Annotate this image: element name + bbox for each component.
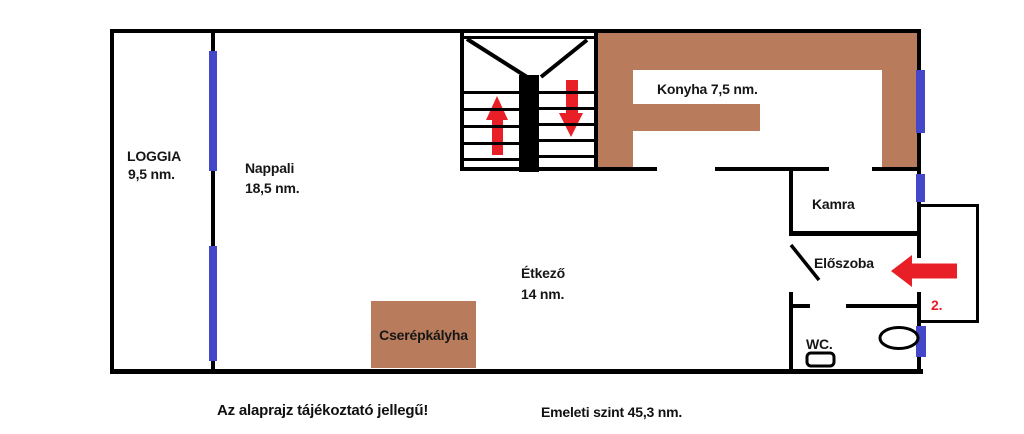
stairs-upper-flight-line-right [541, 40, 587, 77]
room-label-kamra: Kamra [812, 195, 855, 213]
room-label-loggia: LOGGIA [127, 147, 181, 165]
fixtures-layer [0, 0, 1024, 434]
stairs-upper-flight-line-left [467, 39, 527, 77]
room-label-eloszoba: Előszoba [814, 254, 874, 272]
room-label-nappali: Nappali [245, 159, 294, 177]
oval-basin-icon [880, 328, 918, 349]
room-label-konyha: Konyha 7,5 nm. [657, 80, 758, 98]
entrance-number-label: 2. [931, 296, 942, 314]
disclaimer-text: Az alaprajz tájékoztató jellegű! [217, 402, 428, 419]
room-area-nappali: 18,5 nm. [245, 179, 299, 197]
entrance-left-arrow [891, 255, 957, 287]
room-area-etkezo: 14 nm. [521, 285, 564, 303]
room-label-wc: WC. [806, 335, 833, 353]
room-label-etkezo: Étkező [521, 264, 565, 282]
room-area-loggia: 9,5 nm. [128, 165, 175, 183]
floor-plan: Cserépkályha LOGGIA 9,5 nm. Nappali 18,5… [0, 0, 1024, 434]
level-summary-text: Emeleti szint 45,3 nm. [541, 404, 682, 420]
toilet-cistern-icon [807, 353, 834, 366]
